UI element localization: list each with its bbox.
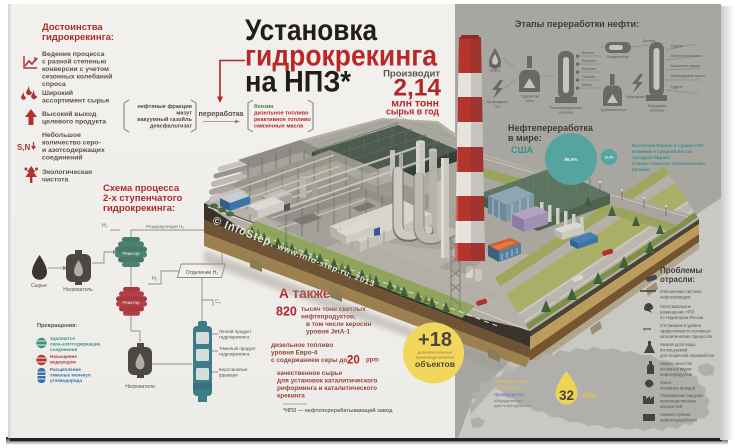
svg-text:в мире:: в мире: [508, 133, 542, 143]
svg-text:производственных: производственных [660, 399, 697, 404]
svg-text:Гудрон: Гудрон [671, 85, 682, 89]
svg-text:Легкий продукт: Легкий продукт [219, 328, 252, 334]
svg-text:Реактор: Реактор [122, 300, 140, 305]
svg-text:Ведение процесса: Ведение процесса [42, 51, 105, 58]
svg-text:20: 20 [347, 355, 360, 367]
svg-text:Машинное масло: Машинное масло [671, 64, 700, 68]
svg-text:Низкая доля воды,: Низкая доля воды, [660, 342, 697, 347]
svg-text:Ближний и Средний Восток: Ближний и Средний Восток [632, 149, 693, 154]
svg-text:дизельное топливо: дизельное топливо [271, 342, 333, 349]
svg-text:Западная Европа: Западная Европа [632, 155, 671, 160]
svg-text:Вакуумная: Вакуумная [648, 104, 666, 108]
svg-text:цена: цена [643, 327, 651, 331]
svg-text:уровня Евро-4: уровня Евро-4 [271, 350, 318, 357]
svg-text:Ректификационная: Ректификационная [550, 106, 582, 110]
svg-text:гидрокрекинга:: гидрокрекинга: [103, 203, 175, 214]
svg-text:Тяжелый продукт: Тяжелый продукт [219, 345, 257, 351]
svg-text:Веретенное масло: Веретенное масло [671, 54, 702, 58]
svg-text:Повышенная загрузка: Повышенная загрузка [660, 393, 704, 398]
svg-text:Гудрон: Гудрон [671, 44, 682, 48]
svg-text:деасфальтизат: деасфальтизат [150, 123, 192, 130]
svg-text:колонна: колонна [559, 111, 573, 115]
svg-text:нефтяные фракции: нефтяные фракции [137, 103, 192, 110]
svg-text:используемой: используемой [660, 348, 688, 353]
svg-text:H₂: H₂ [102, 223, 108, 229]
svg-text:гидрокрекинга: гидрокрекинга [219, 352, 250, 357]
svg-text:Расщепление: Расщепление [50, 367, 81, 372]
svg-text:соединения: соединения [50, 347, 78, 352]
svg-text:мазут: мазут [176, 111, 192, 117]
svg-text:сырья в год: сырья в год [386, 107, 439, 117]
svg-text:смазочные масла: смазочные масла [254, 124, 304, 130]
svg-text:крекинга: крекинга [277, 393, 305, 400]
svg-text:и Коломна: и Коломна [494, 385, 519, 391]
svg-text:32: 32 [559, 388, 574, 403]
svg-text:переработка: переработка [199, 109, 245, 118]
svg-text:Насыщение: Насыщение [50, 354, 77, 359]
svg-text:гидрокрекинга: гидрокрекинга [219, 335, 250, 340]
svg-text:основных фондов: основных фондов [660, 386, 696, 391]
svg-text:Широкий: Широкий [42, 89, 73, 97]
svg-text:с содержанием серы до: с содержанием серы до [271, 357, 347, 364]
svg-text:нефть: нефть [489, 68, 500, 73]
svg-text:объектов: объектов [415, 359, 455, 369]
svg-text:Трубчатая печь: Трубчатая печь [600, 108, 626, 112]
svg-text:Реактор: Реактор [122, 251, 140, 256]
svg-text:реактивное топливо: реактивное топливо [254, 117, 311, 123]
svg-text:нефтепроводов: нефтепроводов [660, 295, 691, 300]
svg-text:Конденсатор: Конденсатор [607, 55, 628, 59]
svg-text:Этапы переработки нефти:: Этапы переработки нефти: [515, 19, 639, 29]
svg-text:Износ: Износ [660, 380, 672, 385]
svg-text:для нефтедобычи: для нефтедобычи [494, 403, 531, 408]
svg-text:Нижний Тагил: Нижний Тагил [494, 378, 527, 385]
svg-text:бензин: бензин [254, 103, 274, 110]
svg-text:для вторичной переработки: для вторичной переработки [660, 353, 715, 358]
svg-text:для установок каталитического: для установок каталитического [277, 378, 378, 385]
svg-text:и азотсодержащих: и азотсодержащих [42, 147, 105, 154]
svg-text:вакуумный газойль: вакуумный газойль [137, 116, 192, 123]
svg-text:Газойль: Газойль [582, 75, 595, 79]
svg-text:США: США [511, 145, 534, 155]
svg-text:эффективности основных: эффективности основных [660, 329, 711, 334]
svg-text:Нагреватель: Нагреватель [63, 287, 93, 293]
svg-text:НПЗ: НПЗ [582, 393, 595, 400]
svg-text:в том числе керосин: в том числе керосин [306, 321, 372, 328]
svg-text:Цилиндровое масло: Цилиндровое масло [671, 74, 705, 78]
svg-text:Низкая глубина: Низкая глубина [660, 412, 691, 417]
svg-text:Отставание в уровне: Отставание в уровне [660, 323, 702, 328]
svg-text:Лигроин: Лигроин [582, 59, 596, 63]
svg-text:фракции: фракции [219, 373, 238, 378]
svg-text:уровня JetA-1: уровня JetA-1 [306, 329, 351, 336]
svg-text:Восточная Европа и страны СНГ: Восточная Европа и страны СНГ [632, 143, 704, 148]
svg-text:печь: печь [526, 98, 534, 103]
svg-text:соединений: соединений [42, 154, 83, 162]
svg-text:региона: региона [632, 167, 650, 172]
svg-text:Превращения:: Превращения: [37, 323, 77, 329]
svg-text:Экологическая: Экологическая [42, 169, 92, 176]
svg-text:Низкое качество: Низкое качество [660, 361, 693, 366]
svg-text:на НПЗ*: на НПЗ* [245, 66, 351, 99]
svg-text:ассортимент сырья: ассортимент сырья [42, 98, 109, 105]
svg-text:C₅: C₅ [215, 299, 221, 305]
svg-text:газ: газ [494, 104, 499, 109]
svg-text:риформинга и каталитического: риформинга и каталитического [277, 385, 377, 392]
svg-text:Бензин: Бензин [582, 51, 594, 55]
svg-text:дизельное топливо: дизельное топливо [254, 111, 309, 117]
svg-text:размещение НПЗ: размещение НПЗ [660, 310, 695, 315]
svg-text:с разной степенью: с разной степенью [42, 58, 106, 66]
svg-text:целевого продукта: целевого продукта [42, 119, 106, 126]
svg-text:86.5%: 86.5% [564, 157, 577, 162]
svg-text:13.9%: 13.9% [604, 156, 614, 160]
svg-text:отрасли:: отрасли: [660, 275, 695, 284]
svg-text:Мазут: Мазут [582, 83, 592, 87]
svg-text:S,N: S,N [17, 143, 31, 152]
svg-text:водородом: водородом [50, 360, 76, 365]
svg-text:гидрокрекинга:: гидрокрекинга: [42, 32, 114, 43]
svg-text:Бензин: Бензин [643, 39, 655, 43]
svg-text:Высокий выход: Высокий выход [42, 110, 97, 118]
svg-text:Нагреватели: Нагреватели [125, 384, 155, 390]
svg-text:нефтепереработки: нефтепереработки [660, 418, 697, 423]
svg-text:+18: +18 [418, 329, 452, 351]
svg-text:по территории России: по территории России [660, 315, 704, 320]
svg-text:нефтепродуктов: нефтепродуктов [660, 372, 693, 377]
svg-text:820: 820 [276, 305, 297, 319]
svg-text:тяжелых молекул: тяжелых молекул [50, 373, 91, 378]
svg-text:ppm: ppm [366, 358, 379, 364]
svg-text:Страны Азиатско-Тихоокеанского: Страны Азиатско-Тихоокеанского [632, 161, 706, 166]
svg-text:сера-азотсодержащие: сера-азотсодержащие [50, 342, 101, 347]
svg-text:Отделение H₂: Отделение H₂ [186, 270, 219, 276]
svg-text:каталитических процессов: каталитических процессов [660, 334, 713, 339]
svg-text:количество серо-: количество серо- [42, 140, 101, 147]
svg-text:Неоптимальное: Неоптимальное [660, 304, 692, 309]
svg-text:конверсии с учетом: конверсии с учетом [42, 66, 109, 73]
svg-text:H₂: H₂ [152, 276, 158, 282]
svg-text:чистота: чистота [42, 177, 68, 184]
svg-text:углеводорода: углеводорода [50, 378, 82, 383]
svg-text:Проблемы: Проблемы [660, 266, 703, 275]
svg-text:Небольшое: Небольшое [42, 131, 81, 139]
svg-text:колонна: колонна [650, 109, 664, 113]
svg-text:основных видов: основных видов [660, 367, 692, 372]
svg-text:спроса: спроса [42, 81, 66, 88]
svg-text:Изношенная система: Изношенная система [660, 289, 702, 294]
svg-text:Керосиновые: Керосиновые [219, 367, 248, 372]
svg-text:Нефтепереработка: Нефтепереработка [508, 123, 594, 133]
svg-text:сезонных колебаний: сезонных колебаний [42, 73, 112, 81]
svg-text:Удаляются: Удаляются [50, 336, 75, 341]
svg-text:качественное сырье: качественное сырье [277, 370, 343, 377]
svg-text:Сырье: Сырье [31, 283, 47, 289]
svg-text:Керосин: Керосин [582, 67, 596, 71]
svg-text:*НПЗ — нефтеперерабатывающий з: *НПЗ — нефтеперерабатывающий завод [283, 407, 393, 414]
svg-text:мощностей: мощностей [660, 404, 683, 409]
svg-text:Производство: Производство [494, 392, 524, 397]
svg-text:Рециркуляция H₂: Рециркуляция H₂ [146, 224, 184, 230]
